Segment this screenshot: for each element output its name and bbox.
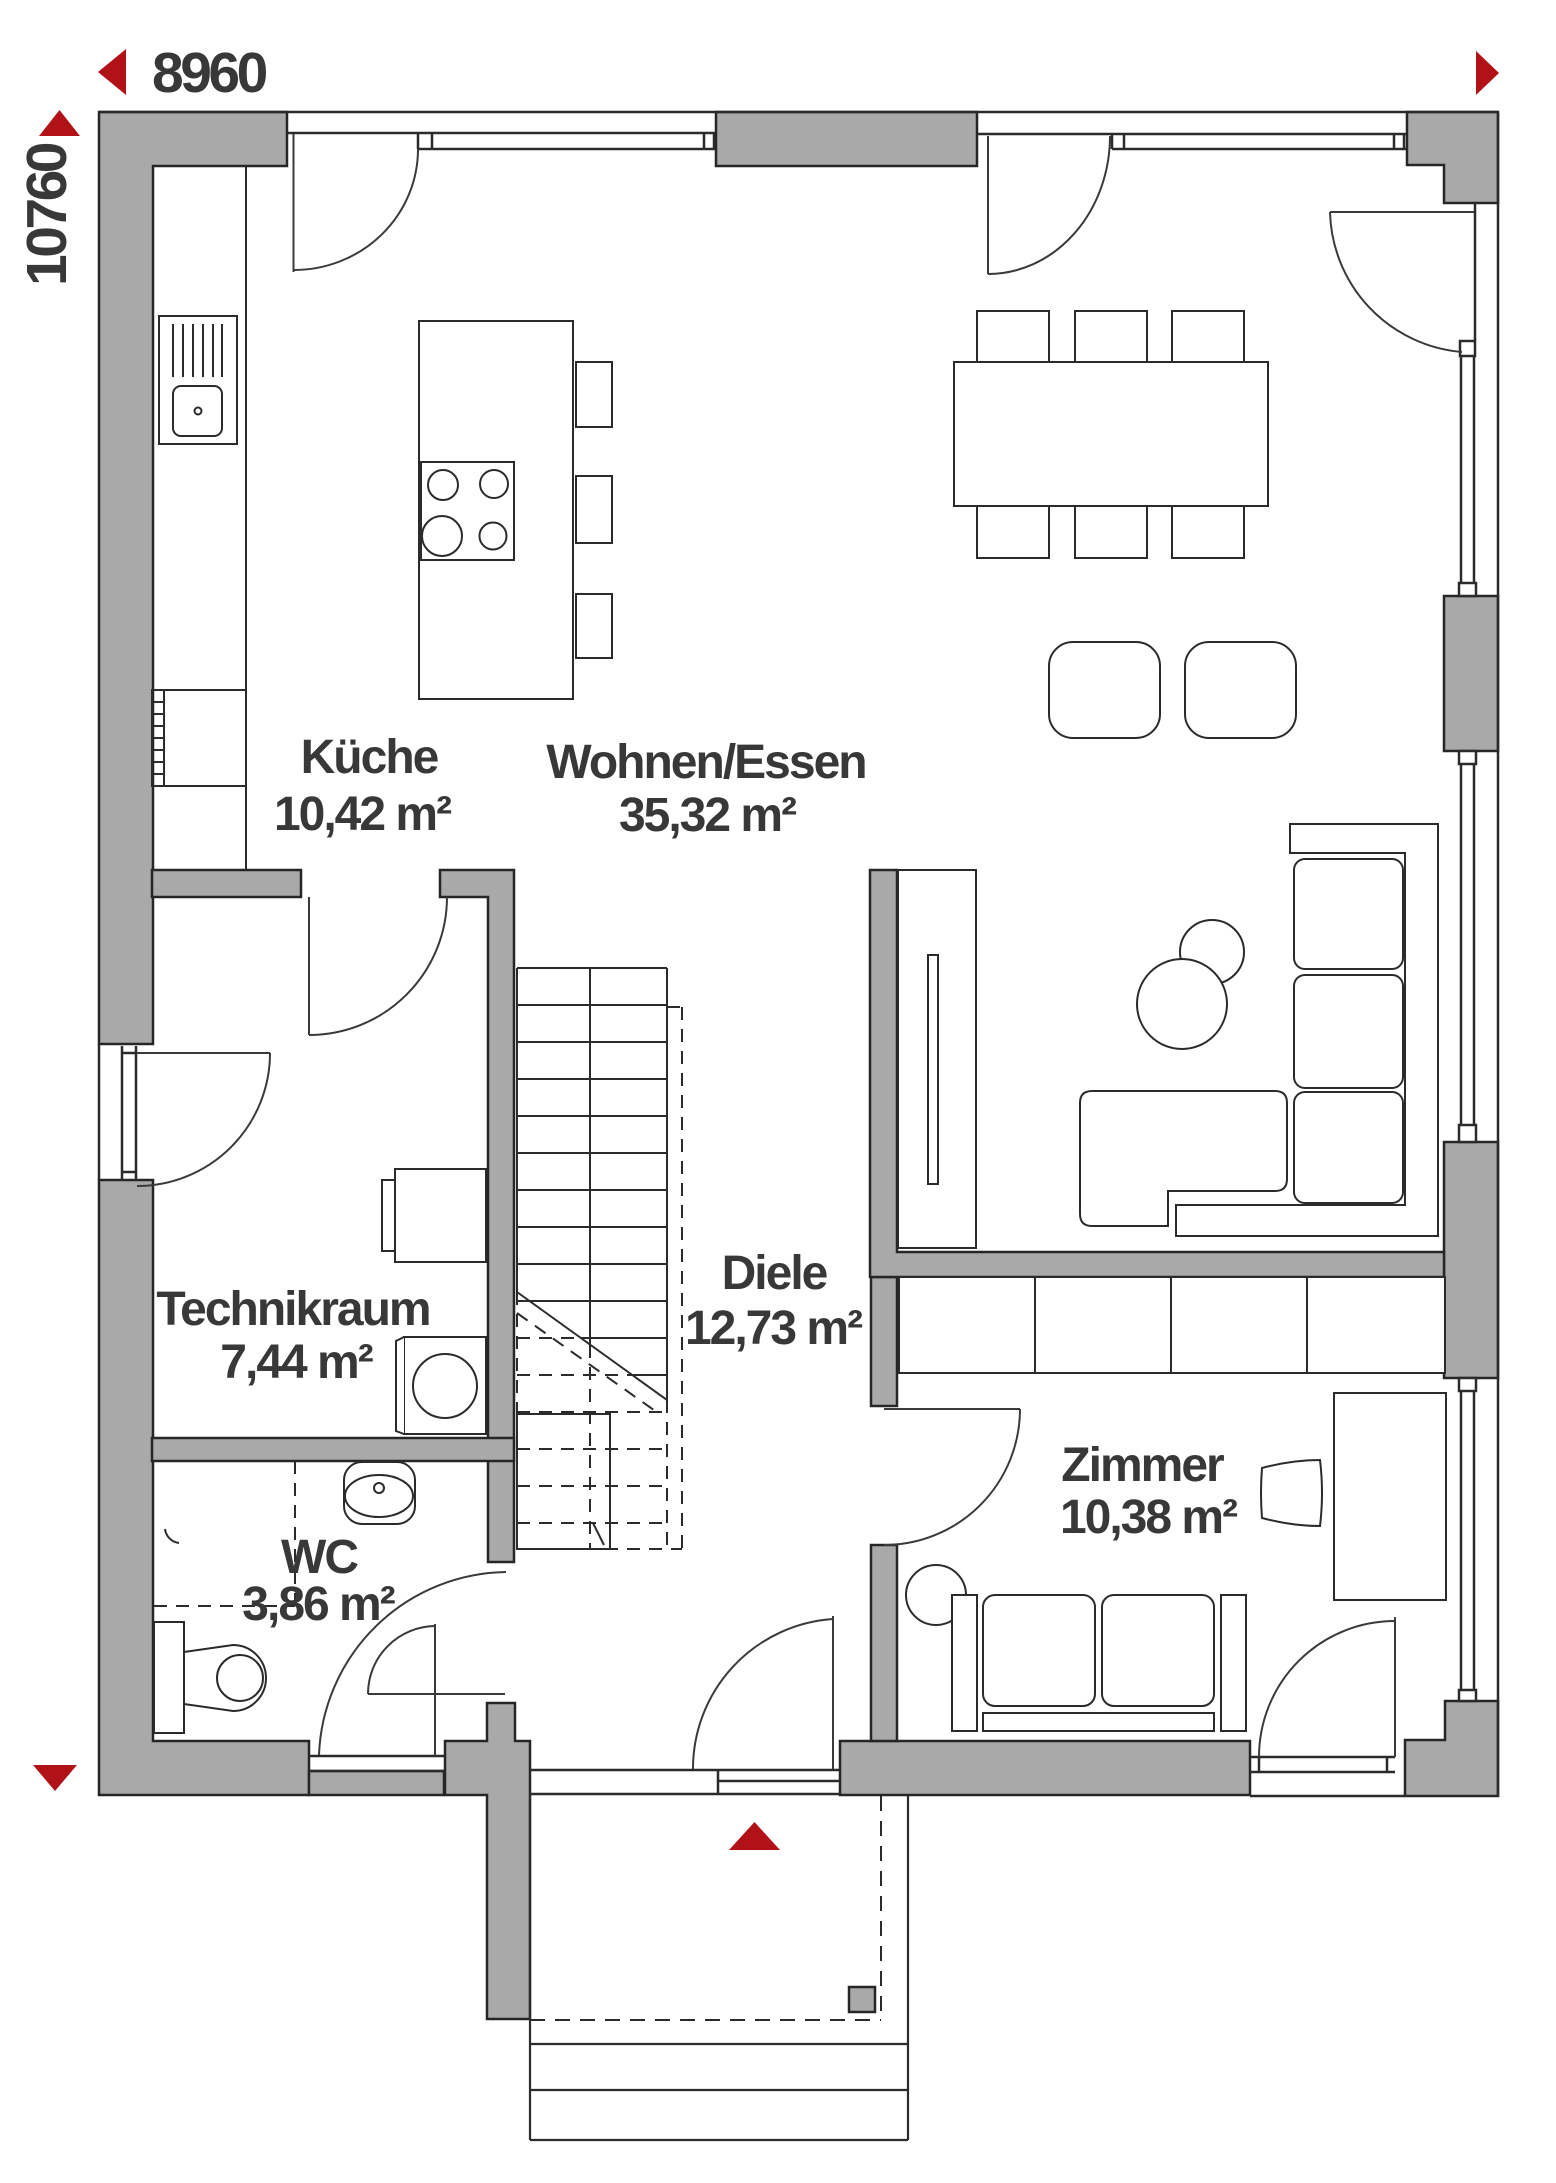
svg-text:Diele: Diele	[722, 1247, 828, 1300]
svg-text:Zimmer: Zimmer	[1061, 1439, 1224, 1492]
svg-text:3,86 m²: 3,86 m²	[242, 1578, 394, 1631]
svg-text:7,44 m²: 7,44 m²	[220, 1336, 372, 1389]
svg-text:10760: 10760	[15, 143, 79, 286]
svg-text:Technikraum: Technikraum	[156, 1283, 429, 1336]
svg-text:10,38 m²: 10,38 m²	[1060, 1491, 1237, 1544]
svg-text:WC: WC	[281, 1531, 358, 1584]
svg-text:35,32 m²: 35,32 m²	[619, 789, 796, 842]
svg-text:10,42 m²: 10,42 m²	[274, 788, 451, 841]
svg-text:12,73 m²: 12,73 m²	[685, 1302, 862, 1355]
svg-text:8960: 8960	[152, 41, 267, 105]
svg-text:Küche: Küche	[301, 731, 439, 784]
svg-text:Wohnen/Essen: Wohnen/Essen	[546, 736, 865, 789]
